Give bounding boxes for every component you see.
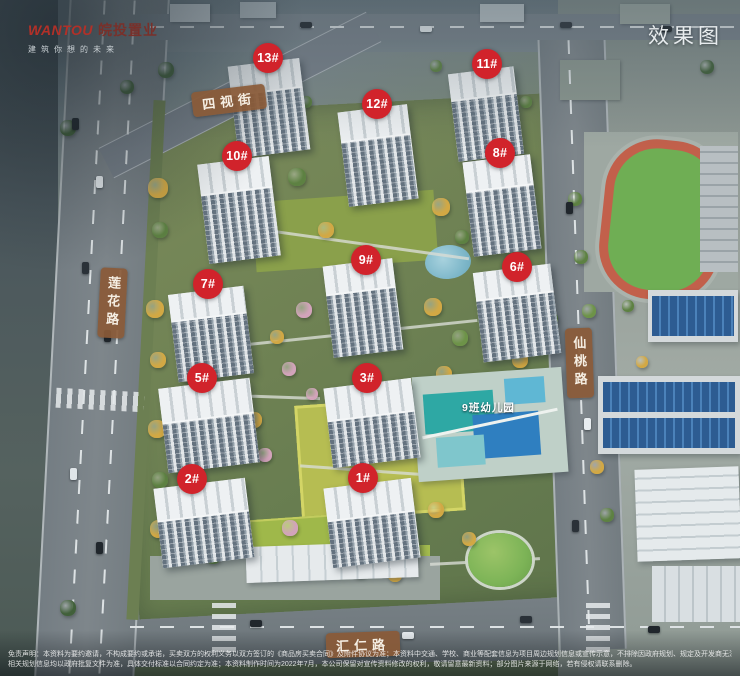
car [72,118,79,130]
tree [146,300,164,318]
tree [60,600,76,616]
building-badge-1: 1# [348,463,378,493]
tree [622,300,634,312]
tree [432,198,450,216]
tree [150,352,166,368]
car [96,542,103,554]
tree [282,520,298,536]
tower-8 [462,154,541,257]
city-building [240,2,276,18]
car [566,202,573,214]
tower-facade [476,292,561,362]
rendering-canvas: 13# 12# 11# 10# 8# 9# 6# 7# 5# 3# 2# 1# … [0,0,740,676]
road-label-west: 莲花路 [97,267,128,338]
building-badge-11: 11# [472,49,502,79]
tree [288,168,306,186]
car [82,262,89,274]
tree [452,330,468,346]
tree [582,304,596,318]
tree [520,96,532,108]
tree [318,222,334,238]
building-badge-2: 2# [177,464,207,494]
tower-facade [341,134,418,207]
round-lawn-hill [468,533,532,587]
tree [455,230,469,244]
tree [148,178,168,198]
building-badge-12: 12# [362,89,392,119]
tree [428,502,444,518]
tree [462,532,476,546]
solar-panels [603,418,735,448]
car [300,22,312,28]
tree [590,460,604,474]
building-badge-7: 7# [193,269,223,299]
disclaimer-text: 免责声明：本资料为要约邀请，不构成要约或承诺，买卖双方的权利义务以双方签订的《商… [8,650,732,670]
tower-5 [158,378,260,474]
tree [152,222,168,238]
rendering-watermark: 效果图 [648,20,723,50]
car [584,418,591,430]
car [96,176,103,188]
building-badge-8: 8# [485,138,515,168]
tree [574,250,588,264]
developer-logo: WANTOU 皖投置业 建筑你想的未来 [28,20,158,55]
kindergarten-complex [412,367,569,482]
car [70,468,77,480]
car [250,620,262,627]
tree [430,60,442,72]
tower-12 [337,104,418,207]
building-badge-9: 9# [351,245,381,275]
logo-tagline: 建筑你想的未来 [28,44,158,55]
tree [158,62,174,78]
tree [270,330,284,344]
tower-facade [201,188,281,264]
tree [120,80,134,94]
disclaimer-line-1: 免责声明：本资料为要约邀请，不构成要约或承诺，买卖双方的权利义务以双方签订的《商… [8,650,732,660]
school-building [700,146,738,272]
kindergarten-label: 9班幼儿园 [462,400,515,415]
solar-panels [603,382,735,412]
tower-2 [153,478,254,569]
car [520,616,532,623]
tree [700,60,714,74]
city-building [480,4,524,22]
car [572,520,579,532]
tree [258,448,272,462]
car [560,22,572,28]
tree [636,356,648,368]
tower-facade [326,287,403,357]
tower-10 [197,156,281,264]
disclaimer-line-2: 相关规划信息均以政府批复文件为准，具体交付标准以合同约定为准；本资料制作时间为2… [8,660,732,670]
building-badge-13: 13# [253,43,283,73]
logo-en-text: WANTOU [28,22,93,38]
solar-roof-building [648,290,738,342]
tower-1 [323,478,420,568]
office-building [634,466,740,562]
kindergarten-roof [436,434,486,467]
office-building [652,566,740,622]
tree [282,362,296,376]
solar-panels [652,296,734,336]
tower-facade [466,184,541,256]
car [420,26,432,32]
logo-cn-text: 皖投置业 [98,20,158,40]
tree [600,508,614,522]
building-badge-6: 6# [502,252,532,282]
tree [152,472,168,488]
tree [306,388,318,400]
building-badge-3: 3# [352,363,382,393]
city-building [170,4,210,22]
tree [296,302,312,318]
building-badge-5: 5# [187,363,217,393]
building-badge-10: 10# [222,141,252,171]
road-label-east: 仙桃路 [565,328,594,399]
tree [424,298,442,316]
solar-roof-building [598,376,740,454]
